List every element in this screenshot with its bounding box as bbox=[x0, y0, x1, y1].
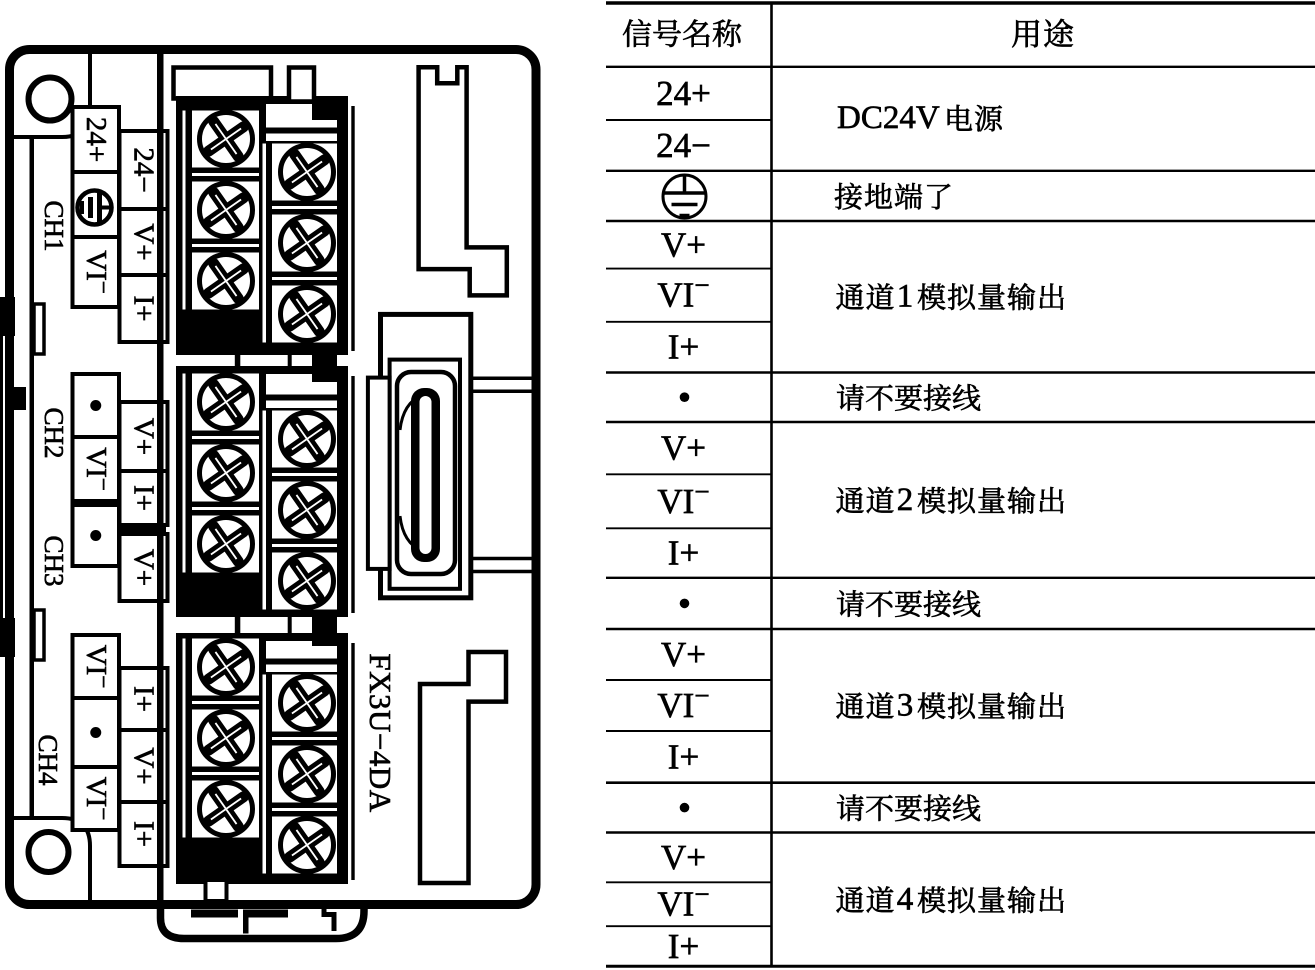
svg-text:3: 3 bbox=[897, 688, 914, 724]
svg-text:24+: 24+ bbox=[656, 74, 711, 113]
svg-text:I+: I+ bbox=[668, 927, 699, 966]
svg-text:V+: V+ bbox=[128, 418, 160, 455]
svg-text:I+: I+ bbox=[128, 485, 160, 511]
svg-text:I+: I+ bbox=[128, 686, 160, 712]
svg-text:V+: V+ bbox=[661, 429, 706, 468]
svg-text:V+: V+ bbox=[661, 838, 706, 877]
svg-text:CH3: CH3 bbox=[39, 535, 69, 586]
svg-text:24+: 24+ bbox=[80, 117, 112, 162]
svg-text:I+: I+ bbox=[668, 328, 699, 367]
svg-text:CH2: CH2 bbox=[39, 407, 69, 458]
svg-text:FX3U−4DA: FX3U−4DA bbox=[363, 653, 398, 812]
svg-text:1: 1 bbox=[897, 279, 914, 315]
svg-text:24−: 24− bbox=[656, 126, 711, 165]
svg-text:I+: I+ bbox=[128, 821, 160, 847]
svg-text:CH4: CH4 bbox=[33, 734, 63, 786]
svg-text:V+: V+ bbox=[661, 635, 706, 674]
svg-text:VI−: VI− bbox=[657, 879, 709, 924]
svg-text:V+: V+ bbox=[661, 225, 706, 264]
svg-text:I+: I+ bbox=[128, 295, 160, 321]
svg-text:VI−: VI− bbox=[657, 681, 709, 726]
svg-text:V+: V+ bbox=[128, 549, 160, 586]
svg-text:I+: I+ bbox=[668, 534, 699, 573]
svg-text:I+: I+ bbox=[668, 737, 699, 776]
svg-text:V+: V+ bbox=[128, 223, 160, 260]
svg-text:2: 2 bbox=[897, 482, 914, 518]
svg-text:CH1: CH1 bbox=[39, 200, 69, 251]
svg-text:DC24V: DC24V bbox=[837, 100, 940, 136]
svg-text:24−: 24− bbox=[128, 147, 160, 192]
svg-text:VI−: VI− bbox=[657, 270, 709, 315]
svg-text:4: 4 bbox=[897, 882, 914, 918]
svg-text:VI−: VI− bbox=[657, 476, 709, 521]
svg-text:V+: V+ bbox=[128, 747, 160, 784]
